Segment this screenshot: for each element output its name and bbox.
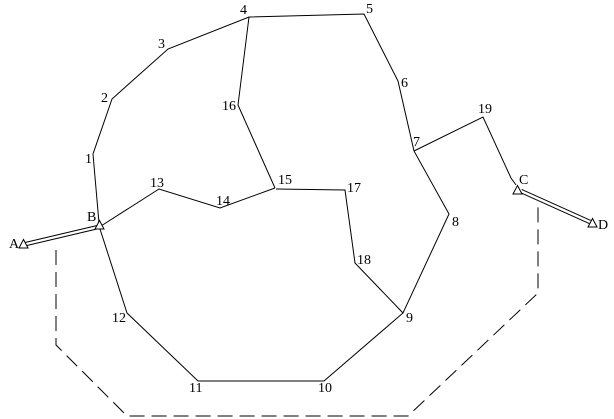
node-label-14: 14 (216, 194, 230, 209)
chord-15-17-18-9 (276, 189, 403, 313)
double-link-C-D-stroke-1 (520, 193, 589, 224)
node-label-3: 3 (158, 37, 165, 52)
node-label-11: 11 (189, 381, 202, 396)
node-label-7: 7 (413, 135, 420, 150)
chord-7-19-C (414, 117, 516, 185)
dashed-outer-boundary (56, 203, 538, 416)
node-label-12: 12 (112, 311, 126, 326)
node-label-17: 17 (347, 181, 361, 196)
node-label-19: 19 (478, 102, 492, 117)
node-label-A: A (9, 237, 20, 252)
terminal-A-triangle (19, 240, 28, 249)
diagram-stage: 12345678910111213141516171819ABCD (0, 0, 614, 419)
node-label-6: 6 (401, 76, 408, 91)
double-link-C-D-stroke-2 (522, 189, 591, 220)
node-label-2: 2 (101, 91, 108, 106)
node-label-16: 16 (222, 99, 236, 114)
node-label-1: 1 (85, 152, 92, 167)
node-label-5: 5 (366, 2, 373, 17)
double-link-A-B-stroke-2 (26, 225, 98, 242)
node-label-8: 8 (452, 215, 459, 230)
node-label-13: 13 (150, 176, 164, 191)
node-label-15: 15 (278, 173, 292, 188)
chord-4-16-15 (238, 17, 275, 188)
node-label-B: B (87, 210, 96, 225)
chord-15-14-13-B (101, 188, 275, 226)
node-label-10: 10 (318, 381, 332, 396)
node-label-18: 18 (357, 253, 371, 268)
node-label-9: 9 (406, 311, 413, 326)
network-diagram-canvas: 12345678910111213141516171819ABCD (0, 0, 614, 419)
node-label-4: 4 (240, 3, 247, 18)
node-label-C: C (519, 173, 528, 188)
node-label-D: D (598, 218, 608, 233)
double-link-A-B-stroke-1 (26, 229, 98, 246)
